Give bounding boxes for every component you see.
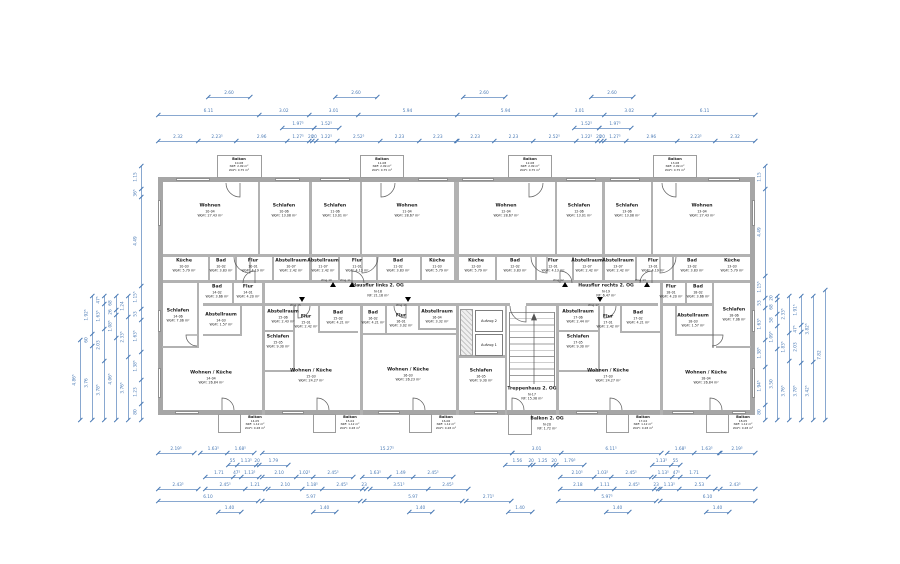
entrance-marker-icon (644, 282, 650, 287)
room-label-f16: Flur16-01WoFl: 3.02 m² (390, 314, 413, 329)
dimension-line (262, 453, 512, 454)
dimension-value: 2.03 (794, 343, 799, 353)
dimension-value: 1.27⁵ (609, 135, 620, 140)
room-label-s18: Schlafen18-06WoFl: 7.06 m² (723, 308, 746, 323)
room-area: WoFl: 2.42 m² (307, 269, 338, 273)
room-label-b2og: Balkon 2. OGN-20NF: 1.72 m² (530, 417, 563, 432)
door-arc (222, 398, 234, 410)
room-label-wk18: Wohnen / Küche18-04WoFl: 26.84 m² (685, 371, 727, 386)
dimension-value: 7.82 (818, 350, 823, 360)
dimension-value: 5.94 (403, 109, 413, 114)
room-label-f17: Flur17-01WoFl: 2.42 m² (597, 315, 620, 330)
room-area: NF: 1.72 m² (530, 427, 563, 431)
dimension-chain: 2.60 (591, 89, 633, 105)
dimension-value: 2.23 (395, 135, 405, 140)
room-label-f11: Flur11-01WoFl: 4.13 m² (346, 259, 369, 274)
dimension-value: 1.63⁵ (758, 318, 763, 329)
entrance-label: Wng 16 (396, 303, 407, 307)
dimension-line (801, 296, 802, 420)
dimension-value: 3.82⁵ (806, 323, 811, 334)
dimension-value: 2.45⁵ (219, 483, 230, 488)
room-label-a11: Abstellraum11-07WoFl: 2.42 m² (307, 259, 338, 274)
dimension-value: 1.22⁵ (581, 135, 592, 140)
dimension-value: 47⁵ (233, 471, 240, 476)
dimension-value: 2.23⁵ (211, 135, 222, 140)
dimension-value: 6.10 (203, 495, 213, 500)
dimension-value: 1.40 (416, 506, 426, 511)
dimension-value: 1.92⁵ (85, 309, 90, 320)
dimension-line (765, 166, 766, 420)
room-label-b14: Bad14-02WoFl: 3.66 m² (206, 285, 229, 300)
dimension-value: 55 (230, 459, 235, 464)
dimension-value: 3.76⁵ (782, 385, 787, 396)
dimension-line (409, 512, 432, 513)
entrance-label: Wng 13 (635, 278, 646, 282)
dimension-value: 1.22⁵ (321, 135, 332, 140)
dimension-line (335, 97, 377, 98)
room-label-f13: Flur13-01WoFl: 4.19 m² (642, 259, 665, 274)
dimension-line (606, 512, 629, 513)
room-label-b11: Bad11-02WoFl: 3.83 m² (387, 259, 410, 274)
dimension-line (591, 97, 633, 98)
dimension-value: 47⁵ (673, 471, 680, 476)
room-area: NF: 6.47 m² (578, 294, 634, 298)
dimension-value: 2.10⁵ (571, 471, 582, 476)
room-area: WoFl: 13.08 m² (614, 214, 639, 218)
dimension-chain: 2.60 (208, 89, 250, 105)
room-area2: WoFl: 0.75 m² (372, 169, 392, 173)
dimension-value: 3.01 (532, 447, 542, 452)
dimension-value: 1.52⁵ (321, 122, 332, 127)
room-area2: WoFl: 0.75 m² (520, 169, 540, 173)
dimension-value: 6.11 (700, 109, 710, 114)
dimension-line (599, 128, 631, 129)
room-area: NF: 21.16 m² (352, 294, 404, 298)
dimension-line (505, 465, 584, 466)
room-area: WoFl: 3.66 m² (206, 295, 229, 299)
room-label-a17: Abstellraum17-06WoFl: 2.44 m² (562, 310, 593, 325)
room-area: WoFl: 5.79 m² (721, 269, 744, 273)
dimension-line (652, 465, 680, 466)
room-label-b15: Bad15-02WoFl: 4.21 m² (327, 311, 350, 326)
room-area: WoFl: 3.66 m² (687, 295, 710, 299)
room-area: WoFl: 5.79 m² (426, 269, 449, 273)
dimension-value: 3.50 (770, 379, 775, 389)
dimension-value: 2.71⁵ (483, 495, 494, 500)
dimension-line (158, 453, 194, 454)
dimension-value: 1.38⁵ (758, 348, 763, 359)
room-area: WoFl: 2.42 m² (597, 325, 620, 329)
room-area2: WoFl: 0.28 m² (733, 427, 753, 431)
room-label-s11: Schlafen11-06WoFl: 13.01 m² (322, 204, 347, 219)
dimension-value: 2.60 (224, 91, 234, 96)
room-label-a16: Abstellraum16-04WoFl: 3.32 m² (421, 310, 452, 325)
room-label-balb16: Balkon16-06NRF: 1.12 m²WoFl: 0.28 m² (436, 415, 456, 431)
room-label-a10: Abstellraum10-07WoFl: 2.42 m² (275, 259, 306, 274)
door-arc (662, 183, 676, 197)
room-area: WoFl: 4.21 m² (362, 321, 385, 325)
room-area: WoFl: 2.42 m² (602, 269, 633, 273)
room-area: WoFl: 3.83 m² (504, 269, 527, 273)
dimension-value: 3.42⁵ (806, 385, 811, 396)
dimension-line (715, 489, 755, 490)
dimension-value: 55 (673, 459, 678, 464)
room-area2: WoFl: 0.75 m² (665, 169, 685, 173)
dimension-chain: 1.40 (706, 504, 729, 520)
dimension-value: 2.96 (257, 135, 267, 140)
dimension-chain: 4.86⁵ (72, 340, 88, 420)
room-area: WoFl: 9.30 m² (470, 379, 493, 383)
dimension-value: 6.10 (703, 495, 713, 500)
room-area: WoFl: 27.43 m² (689, 214, 714, 218)
dimension-line (92, 296, 93, 420)
dimension-value: 1.83⁵ (782, 341, 787, 352)
room-label-wk15: Wohnen / Küche15-03WoFl: 24.27 m² (290, 369, 332, 384)
room-label-balt12: Balkon12-08NRF: 2.99 m²WoFl: 0.75 m² (520, 157, 540, 173)
dimension-value: 4.49 (758, 227, 763, 237)
dimension-value: 2.10 (274, 471, 284, 476)
dimension-value: 2.45⁵ (625, 471, 636, 476)
dimension-value: 1.13⁵ (658, 471, 669, 476)
entrance-marker-icon (299, 297, 305, 302)
dimension-chain: 6.113.023.015.945.943.013.026.11 (158, 107, 755, 123)
dimension-value: 1.15 (134, 173, 139, 183)
room-area: WoFl: 27.43 m² (197, 214, 222, 218)
dimension-value: 1.97⁵ (292, 122, 303, 127)
room-label-s17: Schlafen17-05WoFl: 9.30 m² (567, 335, 590, 350)
dimension-value: 1.15⁵ (758, 281, 763, 292)
dimension-value: 4.49 (134, 236, 139, 246)
dimension-value: 1.40 (225, 506, 235, 511)
dimension-value: 3.02 (279, 109, 289, 114)
room-label-k12: Küche12-03WoFl: 5.79 m² (465, 259, 488, 274)
dimension-value: 2.45⁵ (327, 471, 338, 476)
dimension-value: 1.40 (713, 506, 723, 511)
room-area: WoFl: 4.21 m² (327, 321, 350, 325)
room-label-balt11: Balkon11-08NRF: 2.99 m²WoFl: 0.75 m² (372, 157, 392, 173)
room-label-k13: Küche13-03WoFl: 5.79 m² (721, 259, 744, 274)
room-label-f15: Flur15-01WoFl: 2.42 m² (295, 315, 318, 330)
dimension-value: 2.19⁵ (731, 447, 742, 452)
room-label-wk14: Wohnen / Küche14-04WoFl: 26.84 m² (190, 371, 232, 386)
door-arc (317, 398, 329, 410)
dimension-value: 2.52⁵ (549, 135, 560, 140)
dimension-value: 1.63⁵ (370, 471, 381, 476)
dimension-value: 2.43⁵ (729, 483, 740, 488)
dimension-chain: 2.60 (463, 89, 505, 105)
dimension-line (706, 512, 729, 513)
room-label-a14: Abstellraum14-03WoFl: 1.57 m² (205, 313, 236, 328)
dimension-chain: 2.19⁵ (719, 445, 755, 461)
door-arc (186, 335, 197, 346)
dimension-line (80, 340, 81, 420)
door-arc (510, 306, 526, 322)
dimension-line (313, 512, 336, 513)
dimension-value: 1.79⁵ (564, 459, 575, 464)
dimension-value: 3.01 (575, 109, 585, 114)
dimension-value: 1.63⁵ (701, 447, 712, 452)
room-area: WoFl: 5.79 m² (173, 269, 196, 273)
dimension-chain: 2.19⁵ (158, 445, 194, 461)
dimension-line (262, 477, 353, 478)
dimension-value: 2.23 (509, 135, 519, 140)
dimension-value: 1.49 (396, 471, 406, 476)
room-area: WoFl: 3.02 m² (390, 324, 413, 328)
dimension-line (218, 512, 241, 513)
room-label-k10: Küche10-03WoFl: 5.79 m² (173, 259, 196, 274)
dimension-value: 1.13⁵ (244, 471, 255, 476)
dimension-value: 2.23⁵ (690, 135, 701, 140)
dimension-value: 1.11 (600, 483, 610, 488)
dimension-line (560, 477, 651, 478)
room-area: WoFl: 7.06 m² (723, 318, 746, 322)
room-area: WoFl: 4.20 m² (237, 295, 260, 299)
dimension-value: 2.10 (280, 483, 290, 488)
dimension-value: 1.97⁵ (609, 122, 620, 127)
dimension-line (825, 290, 826, 420)
room-area: WoFl: 13.01 m² (566, 214, 591, 218)
entrance-marker-icon (405, 297, 411, 302)
dimension-value: 2.33⁵ (782, 309, 787, 320)
room-area: WoFl: 28.67 m² (493, 214, 518, 218)
room-label-hfr: Hausflur rechts 2. OGN-19NF: 6.47 m² (578, 284, 634, 299)
elevator-1-box: Aufzug 1 (475, 334, 503, 356)
dimension-value: 58 (770, 317, 775, 322)
dimension-value: 1.79 (269, 459, 279, 464)
room-label-balb15: Balkon15-04NRF: 1.12 m²WoFl: 0.28 m² (340, 415, 360, 431)
dimension-chain: 1.40 (313, 504, 336, 520)
room-area: WoFl: 26.84 m² (685, 381, 727, 385)
dimension-value: 1.13⁵ (664, 483, 675, 488)
dimension-value: 36⁵ (134, 189, 139, 196)
room-area: WoFl: 4.21 m² (627, 321, 650, 325)
dimension-line (364, 501, 462, 502)
room-area: WoFl: 28.67 m² (394, 214, 419, 218)
room-label-balb14: Balkon14-05NRF: 1.12 m²WoFl: 0.28 m² (245, 415, 265, 431)
dimension-line (370, 489, 468, 490)
room-label-a18: Abstellraum18-03WoFl: 1.57 m² (677, 314, 708, 329)
room-area: WoFl: 4.19 m² (242, 269, 265, 273)
dimension-value: 1.68⁵ (235, 447, 246, 452)
room-label-balb17: Balkon17-04NRF: 1.12 m²WoFl: 0.28 m² (633, 415, 653, 431)
room-label-wk17: Wohnen / Küche17-03WoFl: 24.27 m² (587, 369, 629, 384)
room-area2: WoFl: 0.75 m² (229, 169, 249, 173)
dimension-value: 2.45⁵ (336, 483, 347, 488)
room-area: WoFl: 26.84 m² (190, 381, 232, 385)
dimension-value: 2.45⁵ (442, 483, 453, 488)
entrance-marker-icon (597, 297, 603, 302)
stair-direction-arrow-icon (532, 314, 537, 384)
room-label-s13: Schlafen13-06WoFl: 13.08 m² (614, 204, 639, 219)
dimension-value: 1.21 (250, 483, 260, 488)
dimension-line (141, 166, 142, 420)
door-arc (529, 183, 543, 197)
dimension-line (508, 512, 532, 513)
dimension-value: 5.97 (306, 495, 316, 500)
dimension-value: 3.02 (624, 109, 634, 114)
dimension-chain: 2.71⁵ (466, 493, 511, 509)
room-area: WoFl: 9.30 m² (567, 345, 590, 349)
dimension-value: 53 (758, 300, 763, 305)
dimension-chain: 1.40 (606, 504, 629, 520)
dimension-value: 2.43⁵ (172, 483, 183, 488)
dimension-chain: 1.40 (508, 504, 532, 520)
room-label-f18: Flur18-01WoFl: 4.20 m² (660, 285, 683, 300)
dimension-value: 1.02⁵ (299, 471, 310, 476)
dimension-line (466, 501, 511, 502)
entrance-label: Wng 15 (290, 303, 301, 307)
entrance-label: Wng 12 (553, 278, 564, 282)
room-area: WoFl: 4.13 m² (542, 269, 565, 273)
dimension-value: 2.18 (573, 483, 583, 488)
room-area2: WoFl: 0.28 m² (245, 427, 265, 431)
door-arc (712, 335, 723, 346)
dimension-chain: 1.40 (218, 504, 241, 520)
dimension-value: 68 (770, 304, 775, 309)
room-label-b18: Bad18-02WoFl: 3.66 m² (687, 285, 710, 300)
dimension-line (558, 501, 656, 502)
room-label-s14: Schlafen14-06WoFl: 7.06 m² (167, 309, 190, 324)
dimension-line (574, 128, 599, 129)
dimension-chain: 2.60 (335, 89, 377, 105)
room-area: WoFl: 5.79 m² (465, 269, 488, 273)
dimension-line (205, 489, 265, 490)
room-label-balt13: Balkon13-08NRF: 2.99 m²WoFl: 0.75 m² (665, 157, 685, 173)
room-label-k11: Küche11-03WoFl: 5.79 m² (426, 259, 449, 274)
room-label-s12: Schlafen12-06WoFl: 13.01 m² (566, 204, 591, 219)
room-label-s10: Schlafen10-06WoFl: 13.08 m² (271, 204, 296, 219)
dimension-value: 1.63⁵ (208, 447, 219, 452)
elevator-2-box: Aufzug 2 (475, 310, 503, 332)
dimension-value: 1.71 (689, 471, 699, 476)
room-area: WoFl: 13.01 m² (322, 214, 347, 218)
room-area: NF: 15.38 m² (507, 397, 556, 401)
room-area: WoFl: 13.08 m² (271, 214, 296, 218)
room-label-balt10: Balkon10-08NRF: 2.99 m²WoFl: 0.75 m² (229, 157, 249, 173)
room-area2: WoFl: 0.28 m² (436, 427, 456, 431)
room-area: WoFl: 4.20 m² (660, 295, 683, 299)
dimension-value: 2.19⁵ (170, 447, 181, 452)
room-label-f12: Flur12-01WoFl: 4.13 m² (542, 259, 565, 274)
dimension-line (158, 489, 198, 490)
dimension-value: 5.97⁵ (601, 495, 612, 500)
dimension-value: 1.13⁵ (241, 459, 252, 464)
dimension-value: 1.13⁵ (656, 459, 667, 464)
dimension-value: 5.94 (501, 109, 511, 114)
dimension-value: 1.27⁵ (292, 135, 303, 140)
room-label-a12: Abstellraum12-07WoFl: 2.42 m² (571, 259, 602, 274)
dimension-line (208, 97, 250, 98)
room-area: WoFl: 2.42 m² (295, 325, 318, 329)
dimension-chain: 2.322.23⁵2.961.27⁵20201.22⁵2.52⁵2.232.23 (158, 133, 457, 149)
dimension-value: 1.40 (613, 506, 623, 511)
dimension-value: 1.18⁵ (307, 483, 318, 488)
room-area: WoFl: 9.30 m² (267, 345, 290, 349)
room-area2: WoFl: 0.28 m² (340, 427, 360, 431)
dimension-value: 1.56 (513, 459, 523, 464)
dimension-value: 1.94⁵ (758, 380, 763, 391)
dimension-chain: 6.10 (158, 493, 258, 509)
dimension-value: 1.52⁵ (581, 122, 592, 127)
dimension-chain: 1.40 (409, 504, 432, 520)
dimension-value: 1.40 (515, 506, 525, 511)
room-label-b13: Bad13-02WoFl: 3.83 m² (681, 259, 704, 274)
room-label-w11: Wohnen11-04WoFl: 28.67 m² (394, 204, 419, 219)
dimension-value: 1.25 (538, 459, 548, 464)
dimension-value: 1.68⁵ (675, 447, 686, 452)
room-area: WoFl: 2.42 m² (275, 269, 306, 273)
door-arc (610, 398, 622, 410)
room-label-b17: Bad17-02WoFl: 4.21 m² (627, 311, 650, 326)
room-area: WoFl: 2.42 m² (571, 269, 602, 273)
room-label-b12: Bad12-02WoFl: 3.83 m² (504, 259, 527, 274)
dimension-value: 5.97 (408, 495, 418, 500)
dimension-value: 1.71 (214, 471, 224, 476)
room-label-a13: Abstellraum13-07WoFl: 2.42 m² (602, 259, 633, 274)
dimension-value: 2.60 (607, 91, 617, 96)
room-area: WoFl: 1.57 m² (677, 324, 708, 328)
door-arc (413, 398, 425, 410)
room-area: WoFl: 3.83 m² (210, 269, 233, 273)
dimension-value: 2.96 (646, 135, 656, 140)
room-label-w13: Wohnen13-04WoFl: 27.43 m² (689, 204, 714, 219)
door-arc (710, 398, 722, 410)
dimension-value: 2.32 (173, 135, 183, 140)
dimension-value: 47⁵ (794, 325, 799, 332)
room-label-f14: Flur14-01WoFl: 4.20 m² (237, 285, 260, 300)
dimension-line (560, 489, 658, 490)
dimension-line (654, 477, 708, 478)
dimension-line (512, 453, 661, 454)
dimension-line (463, 97, 505, 98)
dimension-value: 1.09⁵ (770, 331, 775, 342)
room-label-s15: Schlafen15-05WoFl: 9.30 m² (267, 335, 290, 350)
room-label-s16: Schlafen16-05WoFl: 9.30 m² (470, 369, 493, 384)
room-area: WoFl: 7.06 m² (167, 319, 190, 323)
dimension-value: 2.60 (479, 91, 489, 96)
dimension-line (104, 296, 105, 420)
dimension-value: 20 (770, 295, 775, 300)
room-area: WoFl: 3.32 m² (421, 320, 452, 324)
room-label-hfl: Hausflur links 2. OGN-18NF: 21.16 m² (352, 284, 404, 299)
room-area2: WoFl: 0.28 m² (633, 427, 653, 431)
room-label-b10: Bad10-02WoFl: 3.83 m² (210, 259, 233, 274)
room-area: WoFl: 26.23 m² (387, 378, 429, 382)
dimension-value: 4.86⁵ (73, 374, 78, 385)
room-area: WoFl: 4.19 m² (642, 269, 665, 273)
entrance-marker-icon (349, 282, 355, 287)
dimension-line (158, 501, 258, 502)
dimension-value: 1.15 (758, 172, 763, 182)
dimension-chain: 7.82 (817, 290, 833, 420)
dimension-value: 2.53 (694, 483, 704, 488)
dimension-chain: 5.97 (262, 493, 360, 509)
entrance-marker-icon (330, 282, 336, 287)
room-label-w12: Wohnen12-04WoFl: 28.67 m² (493, 204, 518, 219)
room-label-tr: Treppenhaus 2. OGN-17NF: 15.38 m² (507, 387, 556, 402)
dimension-value: 2.23 (433, 135, 443, 140)
dimension-value: 6.11⁵ (605, 447, 616, 452)
entrance-label: Wng 10 (321, 278, 332, 282)
dimension-line (789, 296, 790, 420)
dimension-value: 2.45⁵ (628, 483, 639, 488)
room-area: WoFl: 24.27 m² (290, 379, 332, 383)
dimension-chain: 15.27⁵ (262, 445, 512, 461)
dimension-value: 3.01 (329, 109, 339, 114)
room-area: WoFl: 24.27 m² (587, 379, 629, 383)
entrance-marker-icon (562, 282, 568, 287)
dimension-value: 2.45⁵ (427, 471, 438, 476)
